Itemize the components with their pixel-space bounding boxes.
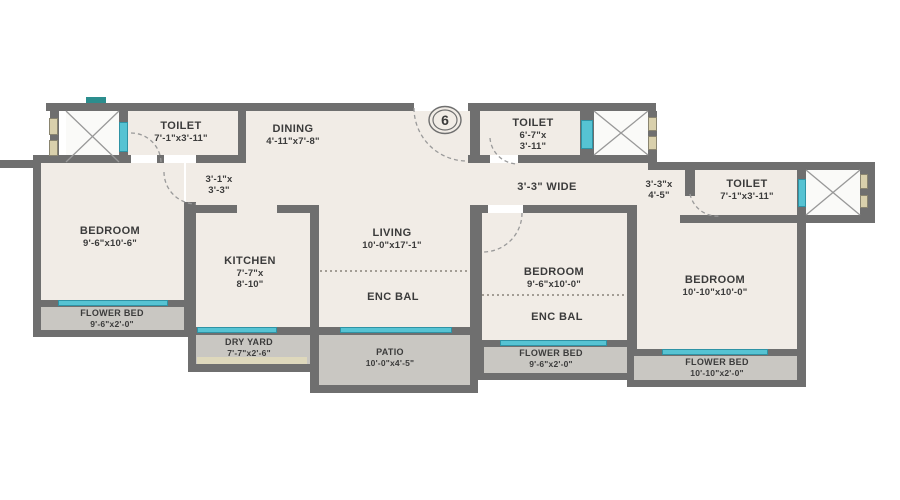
window <box>340 327 452 333</box>
duct <box>49 140 58 156</box>
duct <box>860 174 868 189</box>
window <box>798 179 806 207</box>
room-name: ENC BAL <box>367 291 419 304</box>
passage-label-right: 3'-3"x 4'-5" <box>646 179 673 201</box>
room-label-dry-yard: DRY YARD 7'-7"x2'-6" <box>225 337 273 358</box>
room-name: KITCHEN <box>224 255 276 268</box>
wall <box>238 111 246 163</box>
wall <box>157 155 164 163</box>
room-dims: 9'-6"x2'-0" <box>80 319 144 329</box>
window <box>581 120 593 149</box>
wall <box>468 103 656 111</box>
room-dims: 10'-0"x17'-1" <box>362 240 421 251</box>
window <box>58 300 168 306</box>
room-label-bedroom-left: BEDROOM 9'-6"x10'-6" <box>80 225 140 249</box>
room-dims: 9'-6"x10'-0" <box>524 279 584 290</box>
duct <box>648 136 657 150</box>
passage-dims: 3'-3" <box>206 185 233 196</box>
passage-dims: 3'-1"x <box>206 174 233 185</box>
room-dims: 9'-6"x10'-6" <box>80 238 140 249</box>
room-label-flower-bed-right: FLOWER BED 10'-10"x2'-0" <box>685 357 749 378</box>
wall <box>310 385 478 393</box>
wall <box>184 202 196 337</box>
wall <box>680 215 875 223</box>
room-dims: 7'-7"x2'-6" <box>225 348 273 358</box>
window <box>500 340 607 346</box>
wall <box>797 349 806 387</box>
room-label-bedroom-right: BEDROOM 10'-10"x10'-0" <box>683 274 748 298</box>
room-name: PATIO <box>366 347 415 358</box>
room-label-flower-bed-left: FLOWER BED 9'-6"x2'-0" <box>80 308 144 329</box>
room-name: FLOWER BED <box>519 348 583 359</box>
room-dims: 10'-0"x4'-5" <box>366 358 415 368</box>
vent-mark <box>86 97 106 103</box>
room-label-toilet-right: TOILET 7'-1"x3'-11" <box>720 178 773 202</box>
duct <box>860 195 868 208</box>
room-label-kitchen: KITCHEN 7'-7"x 8'-10" <box>224 255 276 290</box>
room-name: FLOWER BED <box>80 308 144 319</box>
room-dims: 3'-11" <box>512 141 553 152</box>
wall <box>867 162 875 223</box>
wall <box>797 215 806 356</box>
room-name: FLOWER BED <box>685 357 749 368</box>
room-name: ENC BAL <box>531 311 583 324</box>
wall <box>188 364 319 372</box>
wall <box>33 160 41 337</box>
wall <box>685 170 695 196</box>
window <box>197 327 277 333</box>
room-dims: 10'-10"x2'-0" <box>685 368 749 378</box>
window <box>119 122 128 152</box>
wall <box>482 205 488 213</box>
wall <box>627 380 806 387</box>
room-label-patio: PATIO 10'-0"x4'-5" <box>366 347 415 368</box>
passage-label-left: 3'-1"x 3'-3" <box>206 174 233 196</box>
room-dims: 7'-7"x <box>224 268 276 279</box>
room-dims: 4'-11"x7'-8" <box>266 136 319 147</box>
wall <box>46 103 414 111</box>
room-label-enc-bal-bedroom: ENC BAL <box>531 311 583 324</box>
wall <box>648 162 875 170</box>
dry-yard-planter-strip <box>197 357 307 364</box>
room-label-enc-bal-living: ENC BAL <box>367 291 419 304</box>
wall <box>518 155 656 163</box>
room-dims: 8'-10" <box>224 279 276 290</box>
passage-label-center: 3'-3" WIDE <box>517 181 577 194</box>
room-dims: 9'-6"x2'-0" <box>519 359 583 369</box>
room-name: LIVING <box>362 227 421 240</box>
room-dims: 7'-1"x3'-11" <box>720 191 773 202</box>
room-name: BEDROOM <box>524 266 584 279</box>
wall <box>196 205 237 213</box>
passage-dims: 3'-3" WIDE <box>517 181 577 194</box>
lift-shaft-right <box>806 170 860 215</box>
wall <box>523 205 637 213</box>
room-name: DRY YARD <box>225 337 273 348</box>
unit-number: 6 <box>441 112 449 128</box>
room-name: BEDROOM <box>683 274 748 287</box>
room-label-bedroom-middle: BEDROOM 9'-6"x10'-0" <box>524 266 584 290</box>
duct <box>648 117 657 131</box>
room-label-flower-bed-middle: FLOWER BED 9'-6"x2'-0" <box>519 348 583 369</box>
wall <box>470 103 480 163</box>
room-name: TOILET <box>512 117 553 130</box>
lift-shaft-center <box>594 111 648 155</box>
room-dims: 7'-1"x3'-11" <box>154 133 207 144</box>
room-name: DINING <box>266 123 319 136</box>
passage-dims: 4'-5" <box>646 190 673 201</box>
duct <box>49 118 58 135</box>
wall <box>470 205 482 347</box>
wall <box>627 205 637 355</box>
passage-dims: 3'-3"x <box>646 179 673 190</box>
window <box>662 349 768 355</box>
floor-plan: 6 TOILET 7'-1"x3'-11" DINING 4'-11"x7'-8… <box>0 0 900 500</box>
room-name: TOILET <box>154 120 207 133</box>
wall <box>33 330 187 337</box>
room-dims: 10'-10"x10'-0" <box>683 287 748 298</box>
wall <box>33 155 131 163</box>
room-label-toilet-top-left: TOILET 7'-1"x3'-11" <box>154 120 207 144</box>
room-name: BEDROOM <box>80 225 140 238</box>
room-dims: 6'-7"x <box>512 130 553 141</box>
wall <box>468 155 490 163</box>
room-label-dining: DINING 4'-11"x7'-8" <box>266 123 319 147</box>
room-label-toilet-top-center: TOILET 6'-7"x 3'-11" <box>512 117 553 152</box>
room-label-living: LIVING 10'-0"x17'-1" <box>362 227 421 251</box>
room-name: TOILET <box>720 178 773 191</box>
wall <box>477 373 630 380</box>
